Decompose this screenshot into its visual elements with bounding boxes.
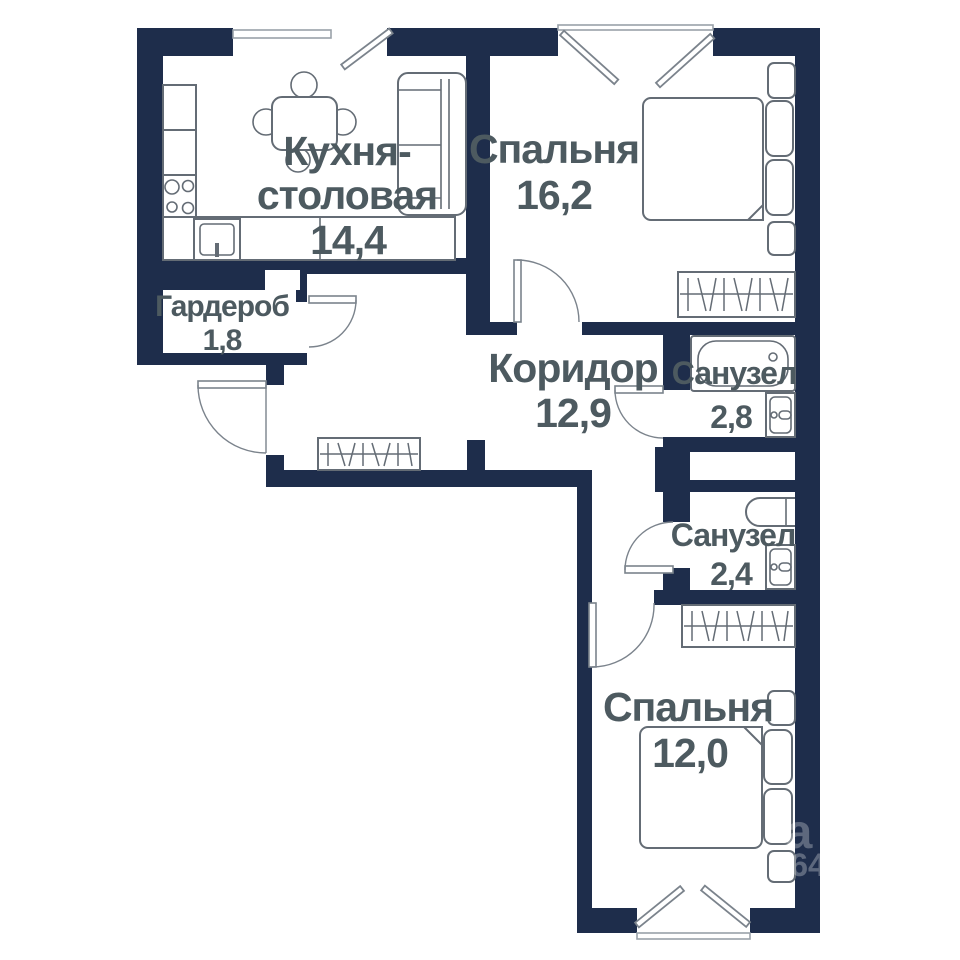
kitchen-label-line1: Кухня- (283, 128, 411, 174)
wardrobe-room-label: Гардероб (155, 290, 289, 323)
wall-corridor-top-a (488, 322, 517, 335)
wall-bedroom2-top-b (654, 590, 795, 605)
garderob-door-leaf (309, 296, 356, 303)
corridor-label: Коридор (488, 345, 657, 391)
entry-door-arc (198, 385, 266, 453)
bedroom-bottom-door-leaf (589, 603, 596, 667)
bathroom-top-door-arc (615, 390, 663, 438)
bathroom-top-area: 2,8 (710, 399, 752, 435)
bathroom-bottom-door-leaf (625, 566, 673, 573)
wall-bedroom2-left (577, 470, 592, 933)
bedroom-top-door-arc (517, 260, 579, 322)
bedroom-bottom-window-sash-left (635, 886, 684, 927)
corridor-area: 12,9 (535, 390, 611, 436)
wall-kitchen-bedroom-divider (466, 28, 490, 335)
bedroom-top-area: 16,2 (516, 172, 592, 218)
garderob-door-arc (309, 300, 356, 347)
pillow (764, 730, 792, 784)
bed-mattress (643, 98, 763, 220)
bedroom-top-window-sash-left (560, 31, 618, 84)
wardrobe-room-area: 1,8 (203, 324, 242, 357)
pillow (766, 101, 793, 156)
bedroom-bottom-door-arc (592, 603, 654, 667)
bedroom-bottom-label: Спальня (603, 684, 773, 730)
kitchen-area: 14,4 (310, 217, 387, 263)
wall-bath-bottom-top (663, 480, 795, 492)
floor-plan-page: Кухня- столовая 14,4 Спальня 16,2 Гардер… (0, 0, 960, 960)
bathroom-bottom-area: 2,4 (710, 556, 753, 592)
kitchen-label-line2: столовая (257, 172, 437, 218)
wall-bottom-right (750, 908, 820, 933)
kitchen-cabinet-1 (163, 85, 196, 130)
bathroom-bottom-label: Санузел (671, 517, 796, 553)
bedroom-bottom-area: 12,0 (652, 730, 728, 776)
watermark-digits: 64 (790, 847, 826, 883)
bathroom-bottom-door-arc (625, 522, 673, 570)
pillow (766, 160, 793, 215)
corridor-wardrobe (318, 438, 420, 470)
bedroom-top-window-sill (558, 25, 713, 30)
bedroom-top-label: Спальня (469, 126, 639, 172)
dining-chair (291, 72, 317, 98)
kitchen-cabinet-2 (163, 130, 196, 175)
bedroom-bottom-window-sash-right (701, 886, 750, 927)
wall-right (795, 28, 820, 933)
kitchen-window-sash (341, 28, 393, 69)
bedroom-top-window-sash-right (656, 34, 714, 87)
wall-corridor-stub (467, 440, 485, 472)
wall-corridor-top-b (582, 322, 663, 335)
kitchen-window-sill (233, 30, 331, 38)
wall-garderob-right (296, 290, 307, 302)
bedroom-bottom-window-sill (637, 933, 750, 939)
wall-entry-top-stub (266, 365, 284, 385)
nightstand (768, 222, 795, 255)
kitchen-sink-tap (215, 243, 219, 257)
wall-bottom-left (577, 908, 637, 933)
bathroom-top-label: Санузел (672, 355, 797, 391)
floor-plan: Кухня- столовая 14,4 Спальня 16,2 Гардер… (0, 0, 960, 960)
entry-door-leaf (198, 381, 266, 388)
wall-corridor-bottom (266, 470, 590, 487)
bedroom-top-door-leaf (514, 260, 521, 322)
bedroom-top-furniture (643, 63, 795, 317)
wall-notch (265, 270, 300, 290)
nightstand (768, 63, 795, 98)
